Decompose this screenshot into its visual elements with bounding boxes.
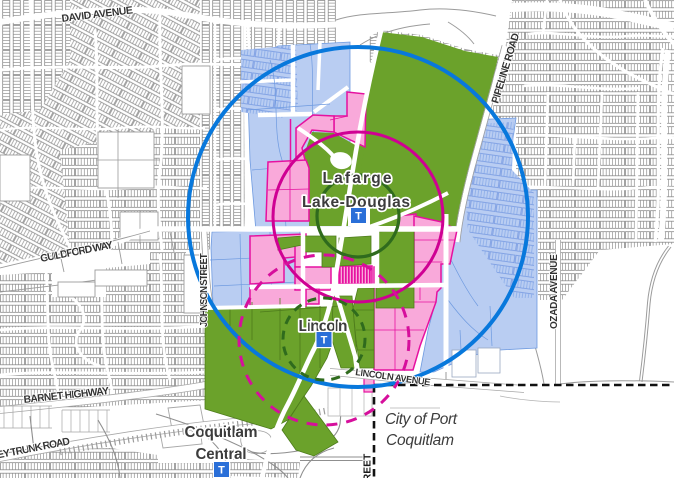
svg-text:Coquitlam: Coquitlam <box>185 424 258 441</box>
svg-text:T: T <box>218 465 225 477</box>
svg-text:REET: REET <box>363 454 374 478</box>
svg-text:OZADA AVENUE: OZADA AVENUE <box>549 254 560 329</box>
svg-text:City of Port: City of Port <box>385 411 458 428</box>
svg-text:T: T <box>321 335 328 347</box>
svg-text:Coquitlam: Coquitlam <box>386 432 454 449</box>
svg-text:JOHNSON STREET: JOHNSON STREET <box>199 253 210 327</box>
svg-text:Central: Central <box>196 446 247 463</box>
svg-text:T: T <box>355 211 362 223</box>
